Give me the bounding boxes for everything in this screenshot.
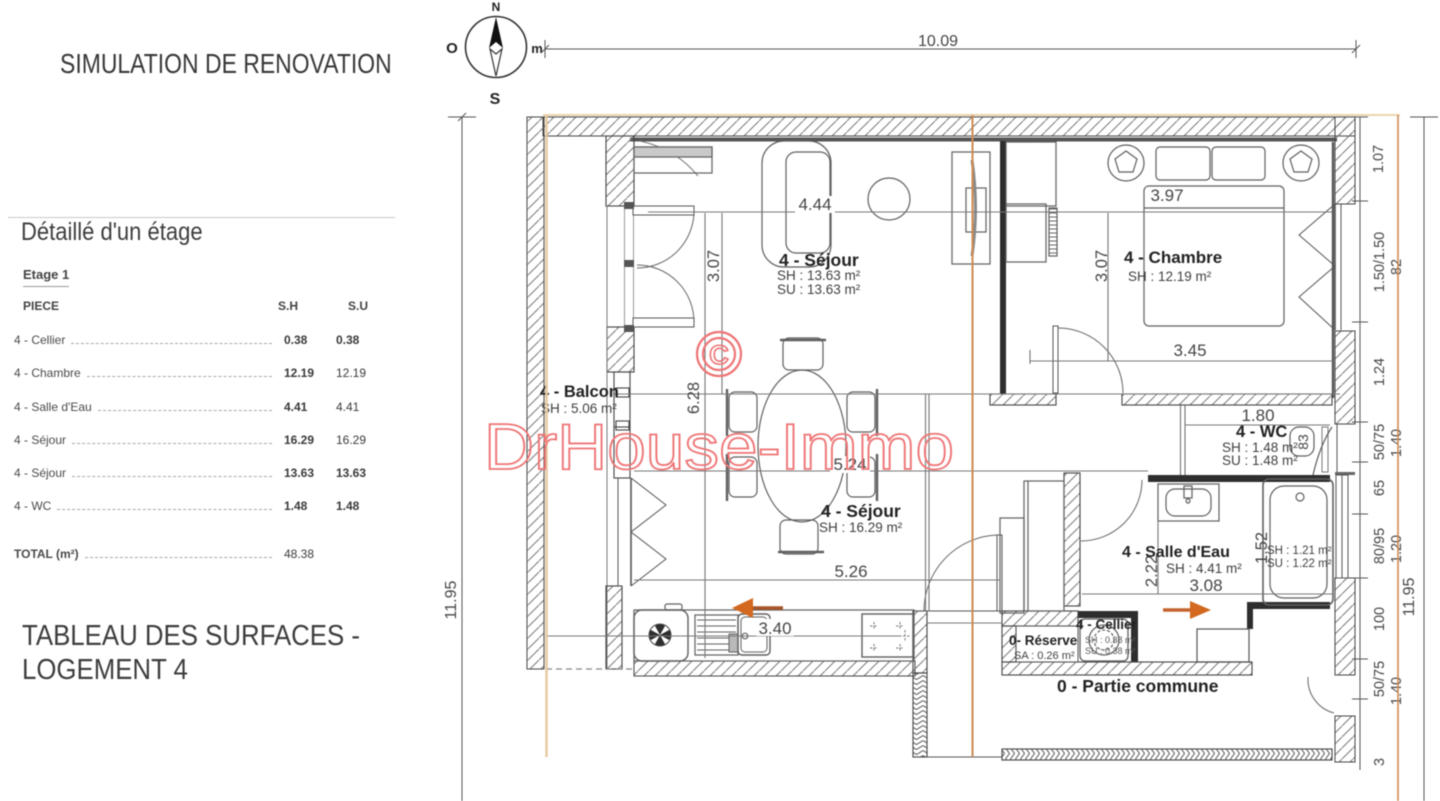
svg-text:5.26: 5.26 xyxy=(834,562,867,581)
svg-text:SH : 13.63 m²: SH : 13.63 m² xyxy=(777,268,861,283)
svg-text:1.40: 1.40 xyxy=(1389,429,1405,457)
svg-text:1.50/1.50: 1.50/1.50 xyxy=(1372,232,1388,292)
svg-text:O: O xyxy=(446,40,458,57)
svg-text:4 - Séjour: 4 - Séjour xyxy=(821,501,901,521)
svg-text:m: m xyxy=(531,41,543,56)
svg-text:11.95: 11.95 xyxy=(1401,577,1418,616)
svg-text:3.97: 3.97 xyxy=(1150,186,1183,205)
svg-text:3: 3 xyxy=(1372,758,1388,766)
svg-text:1.24: 1.24 xyxy=(1372,358,1388,386)
svg-text:4 - Balcon: 4 - Balcon xyxy=(540,383,619,401)
svg-text:SH : 12.19 m²: SH : 12.19 m² xyxy=(1128,269,1212,284)
svg-text:S: S xyxy=(490,91,501,108)
svg-text:50/75: 50/75 xyxy=(1372,424,1388,460)
svg-text:SH : 1.21 m²: SH : 1.21 m² xyxy=(1267,545,1332,557)
svg-text:SU : 1.48 m²: SU : 1.48 m² xyxy=(1222,453,1298,468)
svg-text:80/95: 80/95 xyxy=(1372,528,1388,564)
svg-text:1.40: 1.40 xyxy=(1389,677,1405,705)
svg-text:50/75: 50/75 xyxy=(1372,661,1388,697)
svg-text:3.07: 3.07 xyxy=(705,250,723,282)
svg-text:65: 65 xyxy=(1372,480,1388,496)
svg-text:SH : 0.38 m²: SH : 0.38 m² xyxy=(1085,635,1136,645)
svg-text:4 - Cellier: 4 - Cellier xyxy=(1076,617,1138,632)
svg-text:4 - Salle d'Eau: 4 - Salle d'Eau xyxy=(1122,544,1230,561)
svg-text:3.07: 3.07 xyxy=(1093,250,1111,282)
svg-text:4 - Chambre: 4 - Chambre xyxy=(1124,248,1222,267)
svg-text:SH : 4.41 m²: SH : 4.41 m² xyxy=(1166,561,1242,576)
svg-text:100: 100 xyxy=(1372,607,1388,631)
svg-text:DrHouse-Immo: DrHouse-Immo xyxy=(484,410,954,483)
svg-text:SU : 13.63 m²: SU : 13.63 m² xyxy=(777,282,861,297)
svg-text:0 - Partie commune: 0 - Partie commune xyxy=(1057,676,1219,696)
svg-text:4.44: 4.44 xyxy=(798,195,831,214)
svg-text:0- Réserve: 0- Réserve xyxy=(1009,633,1078,648)
svg-text:1.20: 1.20 xyxy=(1389,535,1405,563)
svg-text:C: C xyxy=(709,340,729,370)
svg-text:10.09: 10.09 xyxy=(918,33,958,50)
svg-text:1.07: 1.07 xyxy=(1371,145,1387,173)
svg-text:4 - Séjour: 4 - Séjour xyxy=(779,250,859,270)
svg-text:3.08: 3.08 xyxy=(1189,576,1222,595)
svg-text:SA : 0.26 m²: SA : 0.26 m² xyxy=(1014,650,1075,662)
svg-text:3.40: 3.40 xyxy=(758,619,791,638)
svg-text:SU : 0.38 m²: SU : 0.38 m² xyxy=(1085,646,1136,656)
svg-text:11.95: 11.95 xyxy=(443,580,460,619)
svg-text:N: N xyxy=(492,0,501,14)
svg-text:3.45: 3.45 xyxy=(1173,341,1206,360)
svg-text:SU : 1.22 m²: SU : 1.22 m² xyxy=(1267,558,1332,570)
svg-text:4 - WC: 4 - WC xyxy=(1236,423,1287,441)
svg-text:82: 82 xyxy=(1389,259,1405,275)
svg-text:SH : 16.29 m²: SH : 16.29 m² xyxy=(819,520,903,535)
